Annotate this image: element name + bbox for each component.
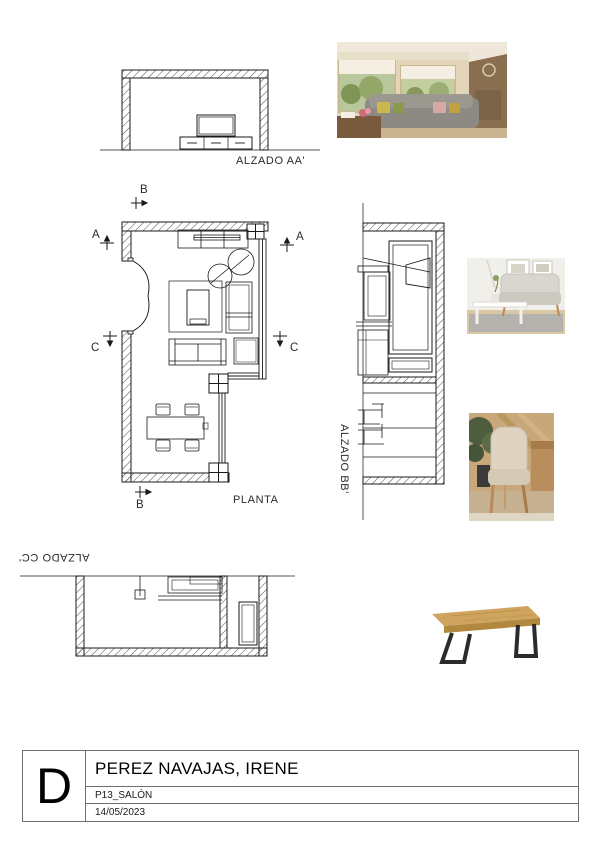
section-marker-a-right: A [296,231,304,243]
elevation-bb-drawing [356,203,444,520]
elevation-bb-label: ALZADO BB' [338,394,350,524]
plan-label: PLANTA [233,494,279,506]
section-marker-a-left: A [92,229,100,241]
section-arrow-a-left [100,236,114,250]
floor-plan-drawing [100,197,294,498]
living-room-photo [337,42,507,138]
door-symbol [122,258,149,334]
project-code: P13_SALÓN [86,787,578,804]
dining-chair-photo [469,413,554,521]
section-arrow-a-right [280,238,294,252]
revision-cell: D [23,751,86,821]
dining-table-photo [420,598,546,670]
elevation-cc-label: ALZADO CC' [16,551,92,563]
title-block: D PEREZ NAVAJAS, IRENE P13_SALÓN 14/05/2… [22,750,579,822]
client-name: PEREZ NAVAJAS, IRENE [86,751,578,787]
elevation-cc-drawing [20,576,295,656]
elevation-aa-label: ALZADO AA' [236,155,305,167]
column-symbol [209,463,228,482]
section-arrow-c-right [273,331,287,346]
elevation-aa-drawing [100,70,320,150]
sofa-photo [467,258,565,334]
section-marker-b-bottom: B [136,499,144,511]
section-marker-c-left: C [91,342,99,354]
section-arrow-b-top [131,197,147,209]
column-symbol [247,224,264,239]
drawing-sheet: ALZADO AA' PLANTA ALZADO BB' ALZADO CC' … [0,0,600,848]
section-marker-b-top: B [140,184,148,196]
column-symbol [209,374,228,393]
revision-letter: D [36,761,72,811]
section-arrow-c-left [103,331,117,346]
section-arrow-b-bottom [135,486,151,498]
section-marker-c-right: C [290,342,298,354]
sheet-date: 14/05/2023 [86,804,578,821]
